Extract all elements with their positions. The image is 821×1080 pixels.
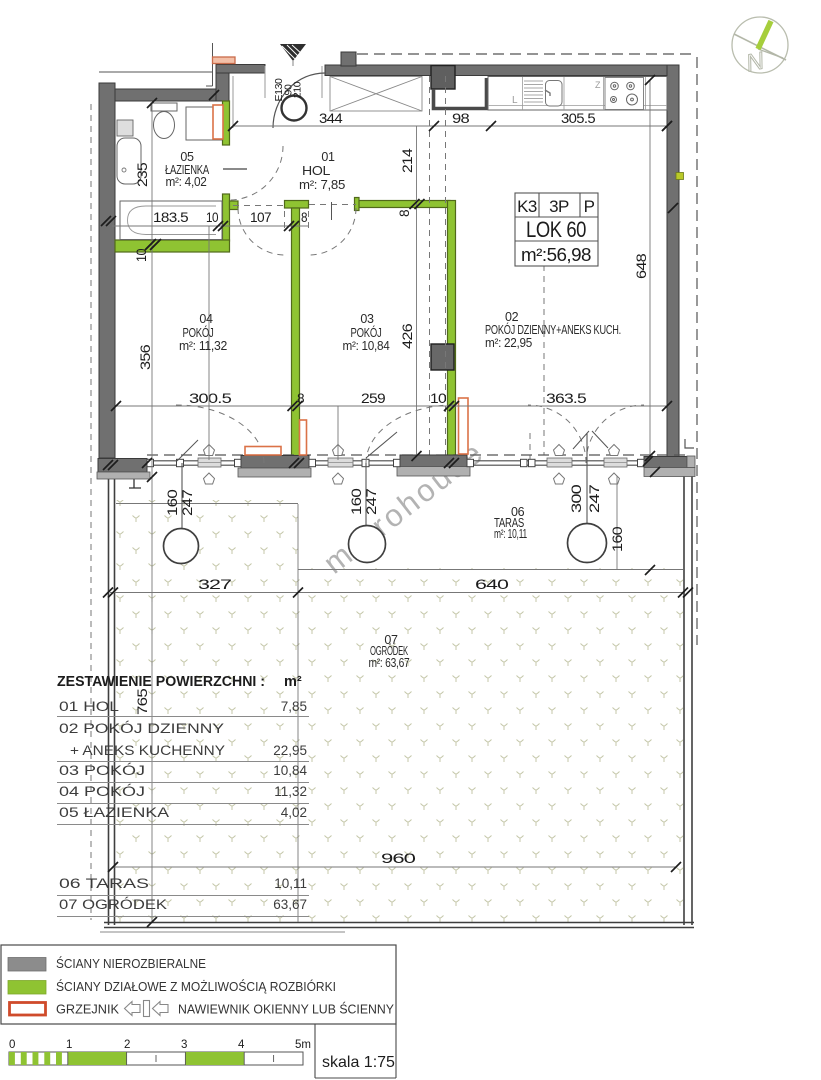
svg-text:L: L: [512, 95, 518, 106]
svg-text:8: 8: [301, 209, 308, 225]
svg-text:63,67: 63,67: [273, 897, 307, 912]
svg-text:8: 8: [297, 390, 305, 406]
svg-text:3: 3: [181, 1039, 187, 1051]
svg-text:HOL: HOL: [302, 164, 330, 178]
svg-text:03 POKÓJ: 03 POKÓJ: [59, 763, 145, 778]
svg-text:4,02: 4,02: [281, 805, 307, 820]
svg-text:960: 960: [381, 850, 416, 866]
svg-text:POKÓJ: POKÓJ: [351, 325, 382, 340]
svg-text:0: 0: [9, 1039, 15, 1051]
svg-text:ZESTAWIENIE POWIERZCHNI :: ZESTAWIENIE POWIERZCHNI :: [57, 674, 265, 690]
svg-text:m²: 11,32: m²: 11,32: [179, 339, 227, 353]
svg-text:3P: 3P: [549, 197, 569, 216]
svg-text:K3: K3: [517, 197, 537, 216]
svg-text:skala 1:75: skala 1:75: [322, 1054, 395, 1071]
svg-text:10: 10: [206, 209, 219, 225]
svg-text:m²: 4,02: m²: 4,02: [166, 175, 207, 189]
svg-text:m²: m²: [284, 674, 302, 690]
svg-text:10: 10: [430, 390, 447, 406]
svg-text:327: 327: [198, 576, 232, 592]
svg-text:300.5: 300.5: [189, 390, 232, 406]
svg-text:648: 648: [633, 253, 649, 279]
svg-text:247: 247: [179, 489, 195, 516]
svg-text:356: 356: [137, 344, 153, 370]
svg-text:640: 640: [475, 576, 509, 592]
svg-text:426: 426: [399, 323, 415, 349]
svg-text:214: 214: [399, 148, 415, 173]
svg-text:m²: 22,95: m²: 22,95: [485, 336, 532, 350]
svg-text:02: 02: [505, 310, 519, 324]
svg-text:235: 235: [134, 162, 150, 187]
svg-text:259: 259: [361, 390, 386, 406]
svg-text:247: 247: [363, 488, 379, 515]
svg-text:03: 03: [360, 312, 374, 326]
svg-text:ŚCIANY NIEROZBIERALNE: ŚCIANY NIEROZBIERALNE: [56, 956, 206, 971]
svg-text:P: P: [584, 197, 595, 216]
svg-text:183.5: 183.5: [153, 209, 189, 225]
svg-text:210: 210: [292, 81, 304, 98]
svg-text:05: 05: [180, 150, 194, 164]
svg-text:22,95: 22,95: [273, 743, 307, 758]
svg-text:07 OGRÓDEK: 07 OGRÓDEK: [59, 897, 167, 912]
svg-text:160: 160: [164, 489, 180, 516]
svg-text:01 HOL: 01 HOL: [59, 699, 120, 714]
svg-text:Z: Z: [595, 80, 601, 90]
svg-text:m²: 10,84: m²: 10,84: [343, 339, 390, 353]
svg-text:8: 8: [396, 209, 412, 217]
svg-text:ŚCIANY DZIAŁOWE Z MOŻLIWOŚCIĄ: ŚCIANY DZIAŁOWE Z MOŻLIWOŚCIĄ ROZBIÓRKI: [56, 979, 336, 994]
svg-text:LOK 60: LOK 60: [526, 217, 586, 242]
svg-text:5m: 5m: [295, 1039, 311, 1051]
svg-text:765: 765: [134, 688, 150, 715]
svg-text:m²: 10,11: m²: 10,11: [494, 527, 527, 541]
svg-text:300: 300: [568, 484, 584, 513]
svg-text:305.5: 305.5: [561, 110, 596, 126]
svg-text:363.5: 363.5: [546, 390, 587, 406]
svg-text:344: 344: [319, 110, 343, 126]
svg-text:06 TARAS: 06 TARAS: [59, 876, 149, 891]
svg-text:m²:56,98: m²:56,98: [521, 245, 591, 265]
svg-text:11,32: 11,32: [274, 784, 307, 799]
svg-text:02 POKÓJ DZIENNY: 02 POKÓJ DZIENNY: [59, 721, 224, 736]
svg-text:10,84: 10,84: [273, 763, 307, 778]
svg-text:m²: 63,67: m²: 63,67: [369, 656, 410, 670]
svg-text:POKÓJ: POKÓJ: [183, 325, 214, 340]
svg-text:04 POKÓJ: 04 POKÓJ: [59, 784, 145, 799]
svg-text:4: 4: [238, 1039, 245, 1051]
svg-text:2: 2: [124, 1039, 130, 1051]
svg-text:160: 160: [609, 526, 625, 552]
svg-text:+ ANEKS KUCHENNY: + ANEKS KUCHENNY: [70, 743, 225, 758]
svg-text:107: 107: [250, 209, 272, 225]
svg-text:160: 160: [348, 488, 364, 515]
svg-text:98: 98: [452, 110, 470, 126]
svg-text:7,85: 7,85: [281, 699, 307, 714]
svg-text:POKÓJ DZIENNY+ANEKS KUCH.: POKÓJ DZIENNY+ANEKS KUCH.: [485, 322, 621, 337]
svg-text:NAWIEWNIK OKIENNY LUB ŚCIENNY: NAWIEWNIK OKIENNY LUB ŚCIENNY: [178, 1002, 395, 1017]
svg-text:GRZEJNIK: GRZEJNIK: [56, 1003, 120, 1017]
svg-text:10,11: 10,11: [274, 876, 307, 891]
svg-text:01: 01: [321, 150, 335, 164]
svg-text:04: 04: [199, 312, 213, 326]
svg-text:10: 10: [133, 248, 149, 262]
svg-text:247: 247: [586, 484, 602, 513]
svg-text:05 ŁAZIENKA: 05 ŁAZIENKA: [59, 805, 169, 820]
svg-text:1: 1: [66, 1039, 72, 1051]
svg-text:m²: 7,85: m²: 7,85: [299, 178, 345, 192]
